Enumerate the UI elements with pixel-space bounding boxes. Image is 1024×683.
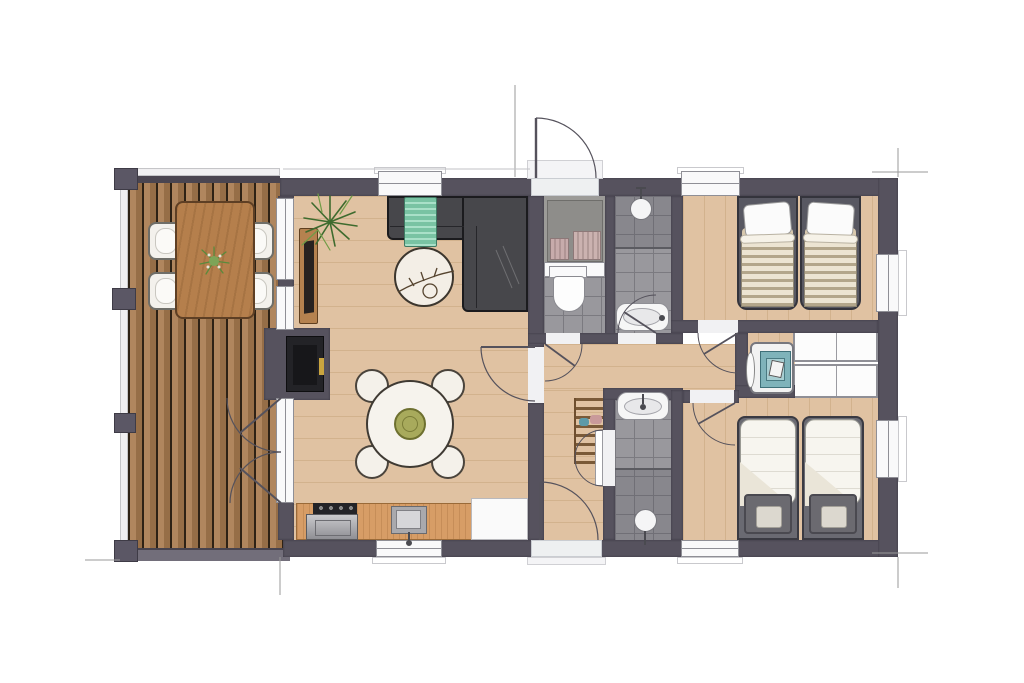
window-living-left-1 (276, 198, 294, 280)
wood-stove-accent (319, 358, 324, 375)
french-door-panels (276, 398, 294, 503)
towel-folded-2 (573, 231, 601, 260)
washbasin-bathroom1 (616, 303, 669, 331)
wood-stove (286, 336, 324, 392)
window-bedroom1-right-sill (898, 250, 907, 316)
entrance-door-threshold (531, 178, 599, 196)
throw-blanket (404, 197, 437, 247)
wall-living-hall-upper (528, 196, 544, 347)
back-door-outside-step (527, 557, 606, 565)
deck-rail-left (120, 168, 128, 562)
doorway-bathroom2 (603, 430, 615, 486)
doorway-bedroom2 (690, 390, 734, 403)
coffee-table (394, 247, 454, 307)
oven (306, 514, 358, 540)
coat-rack-item-pink (590, 415, 602, 424)
wood-stove-core (293, 345, 317, 385)
wardrobe-cabinet-row-1 (793, 328, 878, 362)
deck-post-2 (112, 288, 136, 310)
coat-rack-item-teal (579, 418, 589, 426)
outdoor-dining-table (175, 201, 255, 319)
cooktop (313, 503, 357, 514)
tv-screen (304, 240, 314, 313)
shower-head-bathroom1 (630, 198, 652, 220)
bed1-blanket (741, 241, 794, 307)
washing-machine-handle (746, 352, 755, 388)
washbasin2-bowl (624, 398, 662, 415)
washing-machine (750, 342, 794, 394)
bed2-pillow (806, 201, 855, 237)
window-bedroom2-bottom (681, 540, 739, 557)
washbasin1-bowl (623, 308, 661, 326)
wall-right (878, 178, 898, 557)
wardrobe-cabinet-row-2 (793, 364, 878, 398)
shower-head-bathroom2 (634, 509, 657, 532)
window-kitchen-bottom (376, 540, 442, 557)
bed3-cushion (756, 506, 782, 528)
window-bedroom1-top (681, 171, 740, 196)
back-door-threshold (531, 540, 602, 557)
doorway-toilet (546, 333, 580, 344)
deck-post-3 (114, 413, 136, 433)
bed1-sheet-fold (740, 233, 795, 244)
wall-bath2-right (671, 390, 683, 540)
entrance-outside-step (527, 160, 603, 179)
kitchen-sink-bowl (396, 510, 421, 529)
kitchen-sink (391, 506, 427, 534)
wall-entrance-bath1 (605, 196, 615, 344)
corner-sofa-chaise-section (462, 196, 528, 312)
serving-bowl-inner (402, 416, 418, 432)
deck-edge-top (128, 176, 280, 183)
kitchen-tall-cabinet (471, 498, 528, 540)
toilet-bowl (553, 276, 585, 312)
doorway-bathroom1 (618, 333, 656, 344)
window-living-left-2 (276, 286, 294, 330)
window-bedroom2-right-sill (898, 416, 907, 482)
window-kitchen-bottom-sill (372, 557, 446, 564)
hallway-floor-upper (544, 344, 737, 390)
towel-folded-1 (550, 238, 569, 260)
bed2-blanket (804, 241, 857, 307)
tv-sideboard (299, 228, 318, 324)
doorway-bedroom1 (698, 320, 738, 333)
oven-door-line (315, 520, 351, 536)
bed4-cushion (821, 506, 847, 528)
deck-fascia-bottom (128, 548, 290, 561)
window-bedroom1-right (876, 254, 900, 312)
washing-machine-drum (760, 351, 791, 388)
bed2-sheet-fold (803, 233, 858, 244)
bathroom2-door-leaf (595, 430, 603, 486)
bathroom2-glass-divider (615, 468, 671, 470)
floor-plan-canvas (0, 0, 1024, 683)
deck-post-4 (114, 540, 138, 562)
sofa-seat-line-2 (476, 226, 477, 308)
deck-rail-top (128, 168, 280, 176)
deck-post-1 (114, 168, 138, 190)
window-bedroom2-bottom-sill (677, 557, 743, 564)
bathroom1-glass-divider (615, 247, 671, 249)
serving-bowl (394, 408, 426, 440)
doorway-living-hall (528, 347, 544, 403)
window-living-top (378, 171, 442, 196)
window-bedroom2-right (876, 420, 900, 478)
wall-living-hall-lower (528, 403, 544, 540)
washbasin-bathroom2 (617, 392, 669, 420)
